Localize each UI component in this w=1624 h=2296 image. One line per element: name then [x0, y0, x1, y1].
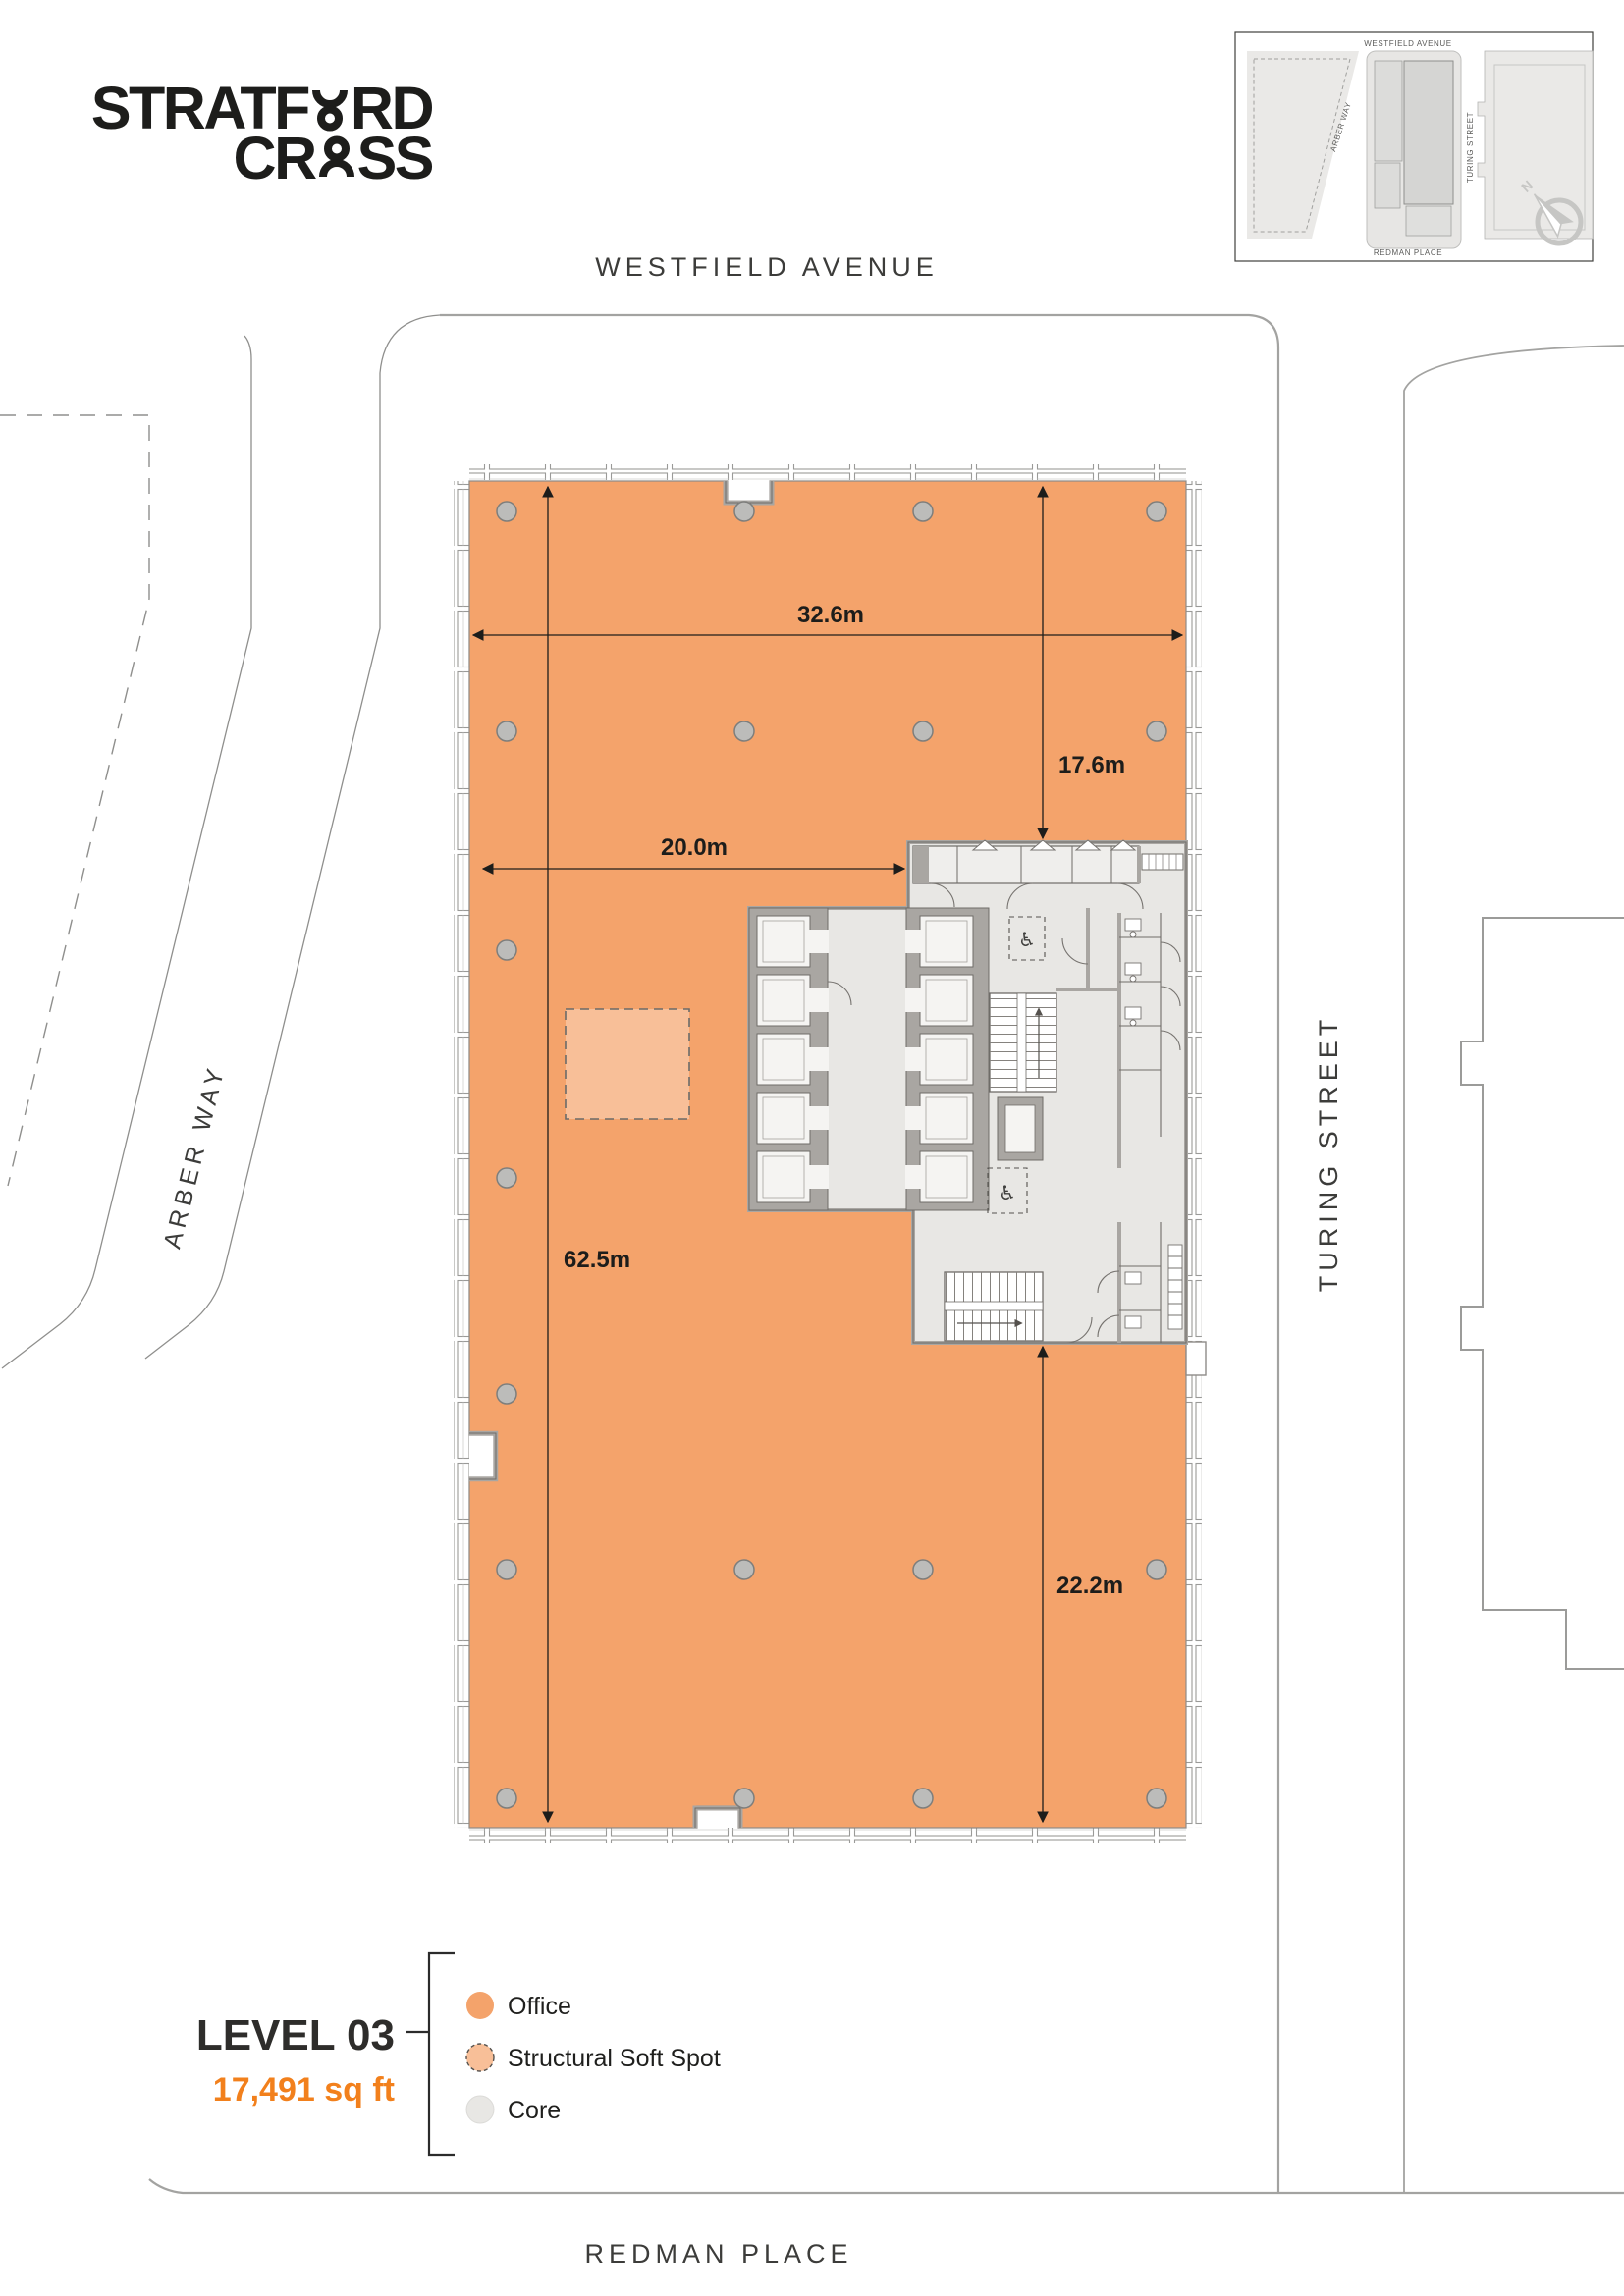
legend-area-value: 17,491 sq ft: [213, 2071, 395, 2109]
column-dot: [734, 502, 754, 521]
stair-upper: [990, 993, 1056, 1092]
facade-east: [1186, 481, 1202, 1828]
curb-redman: [149, 2179, 1624, 2193]
legend-label-core: Core: [508, 2097, 561, 2124]
column-dot: [497, 940, 516, 960]
column-dot: [1147, 1560, 1166, 1579]
accessible-icon: ♿: [1018, 928, 1036, 951]
column-dot: [497, 1789, 516, 1808]
facade-west: [454, 481, 469, 1828]
legend-swatch-soft-spot: [466, 2044, 494, 2071]
minimap-building-b: [1375, 163, 1400, 208]
minimap-label-redman: REDMAN PLACE: [1374, 248, 1442, 257]
minimap-building-c: [1406, 206, 1451, 236]
column-dot: [497, 721, 516, 741]
column-dot: [734, 1560, 754, 1579]
column-dot: [734, 1789, 754, 1808]
legend-label-soft-spot: Structural Soft Spot: [508, 2045, 721, 2072]
column-dot: [1147, 1789, 1166, 1808]
column-dot: [497, 1168, 516, 1188]
neighbour-building-east: [1461, 918, 1624, 1669]
curb-arber-west: [2, 336, 251, 1368]
parcel-boundary-dashed: [0, 415, 149, 1186]
accessible-icon: ♿: [999, 1181, 1016, 1204]
floorplan-page: STRATFRD CRSS: [0, 0, 1624, 2296]
column-dot: [913, 721, 933, 741]
legend-swatch-office: [466, 1992, 494, 2019]
locator-minimap: WESTFIELD AVENUE REDMAN PLACE TURING STR…: [1235, 32, 1593, 261]
minimap-label-westfield: WESTFIELD AVENUE: [1364, 39, 1451, 48]
legend: LEVEL 03 17,491 sq ft Office Structural …: [196, 1953, 721, 2155]
column-dot: [1147, 502, 1166, 521]
dim-label-17-6: 17.6m: [1058, 752, 1125, 778]
street-label-westfield: WESTFIELD AVENUE: [595, 252, 939, 282]
dim-label-22-2: 22.2m: [1056, 1573, 1123, 1599]
street-label-redman: REDMAN PLACE: [584, 2239, 852, 2269]
stair-lower: [945, 1272, 1043, 1341]
minimap-building-a: [1375, 61, 1402, 161]
minimap-label-turing: TURING STREET: [1466, 112, 1475, 183]
legend-bracket: [406, 1953, 455, 2155]
column-dot: [913, 1789, 933, 1808]
site-plan-drawing: WESTFIELD AVENUE TURING STREET REDMAN PL…: [0, 0, 1624, 2296]
column-dot: [497, 502, 516, 521]
street-label-turing: TURING STREET: [1314, 1015, 1343, 1293]
dim-label-62-5: 62.5m: [564, 1247, 630, 1273]
column-dot: [1147, 721, 1166, 741]
facade-north: [469, 464, 1186, 480]
street-label-arber: ARBER WAY: [158, 1061, 231, 1251]
column-dot: [497, 1560, 516, 1579]
structural-soft-spot: [566, 1009, 689, 1119]
column-dot: [497, 1384, 516, 1404]
dim-label-32-6: 32.6m: [797, 602, 864, 628]
facade-south: [469, 1828, 1186, 1843]
column-dot: [913, 1560, 933, 1579]
column-dot: [734, 721, 754, 741]
legend-swatch-core: [466, 2096, 494, 2123]
dim-label-20-0: 20.0m: [661, 834, 728, 861]
legend-level-title: LEVEL 03: [196, 2011, 395, 2059]
fire-lift: [998, 1097, 1043, 1160]
column-dot: [913, 502, 933, 521]
minimap-subject-building: [1404, 61, 1453, 204]
legend-label-office: Office: [508, 1993, 571, 2020]
